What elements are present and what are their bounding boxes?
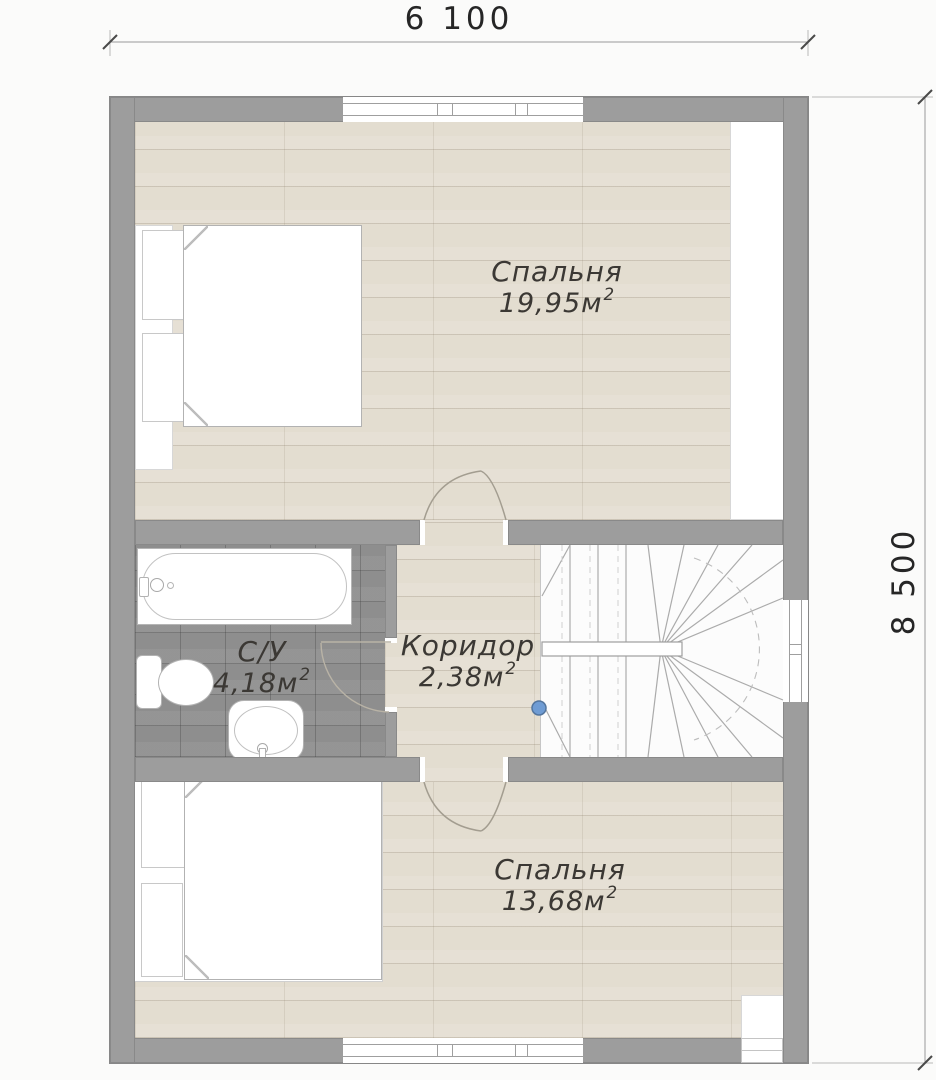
window-right-stairs <box>783 600 808 702</box>
wall-exterior-right <box>783 97 808 1063</box>
dimension-width-label: 6 100 <box>359 1 559 37</box>
window-mullion <box>437 1044 438 1057</box>
room-label-bedroom-bottom: Спальня 13,68м2 <box>440 854 680 918</box>
room-area-sup: 2 <box>299 664 311 684</box>
duvet-fold-corner <box>184 226 208 250</box>
room-name: С/У <box>187 636 337 667</box>
window-mullion <box>515 1044 516 1057</box>
bathtub-faucet-knob <box>150 578 164 592</box>
room-area-value: 2,38м <box>419 662 505 693</box>
duvet-fold-corner <box>185 955 209 979</box>
nightstand <box>141 883 183 977</box>
door-jamb <box>503 520 508 545</box>
window-frame <box>789 600 802 702</box>
window-top <box>343 97 583 122</box>
window-mullion <box>527 1044 528 1057</box>
room-area-value: 19,95м <box>499 288 603 319</box>
door-jamb <box>420 520 425 545</box>
window-mullion <box>789 644 802 645</box>
duvet-fold-corner <box>184 402 208 426</box>
bathtub-faucet <box>139 577 149 597</box>
niche-bedroom-top-right <box>730 122 783 520</box>
wall-interior-mid-top-left <box>135 520 420 545</box>
room-area-sup: 2 <box>607 882 619 902</box>
room-label-corridor: Коридор 2,38м2 <box>378 630 558 694</box>
room-label-bedroom-top: Спальня 19,95м2 <box>437 256 677 320</box>
window-frame <box>343 1044 583 1057</box>
wall-exterior-left <box>110 97 135 1063</box>
window-bottom-right-small <box>741 1038 783 1063</box>
room-name: Спальня <box>437 256 677 287</box>
window-mullion <box>452 103 453 116</box>
room-label-bathroom: С/У 4,18м2 <box>187 636 337 700</box>
wall-interior-mid-bottom-right <box>508 757 783 782</box>
room-area-value: 4,18м <box>213 668 299 699</box>
bed-top <box>183 225 362 427</box>
nightstand <box>142 333 188 422</box>
bed-bottom <box>184 773 382 980</box>
bathtub-drain <box>167 582 174 589</box>
room-area: 13,68м2 <box>440 885 680 917</box>
staircase-area <box>540 545 783 757</box>
wall-interior-mid-top-right <box>508 520 783 545</box>
room-area-sup: 2 <box>604 284 616 304</box>
door-jamb <box>385 707 397 712</box>
door-jamb <box>503 757 508 782</box>
window-bottom <box>343 1038 583 1063</box>
floor-plan-sheet: Спальня 19,95м2 С/У 4,18м2 Коридор 2,38м… <box>0 0 936 1080</box>
room-area-value: 13,68м <box>502 886 606 917</box>
wall-bathroom-corridor-lower <box>385 712 397 757</box>
room-area: 2,38м2 <box>378 661 558 693</box>
nightstand <box>142 230 188 320</box>
window-frame <box>343 103 583 116</box>
niche-bedroom-bottom-right <box>741 995 783 1038</box>
room-name: Спальня <box>440 854 680 885</box>
room-area: 4,18м2 <box>187 667 337 699</box>
room-name: Коридор <box>378 630 558 661</box>
wall-bathroom-corridor-upper <box>385 545 397 638</box>
wall-interior-mid-bottom-left <box>135 757 420 782</box>
window-frame <box>742 1050 782 1051</box>
window-mullion <box>527 103 528 116</box>
window-mullion <box>452 1044 453 1057</box>
room-area-sup: 2 <box>505 658 517 678</box>
door-jamb <box>420 757 425 782</box>
room-area: 19,95м2 <box>437 287 677 319</box>
window-mullion <box>437 103 438 116</box>
window-mullion <box>789 654 802 655</box>
dimension-height-label: 8 500 <box>886 501 928 661</box>
window-mullion <box>515 103 516 116</box>
